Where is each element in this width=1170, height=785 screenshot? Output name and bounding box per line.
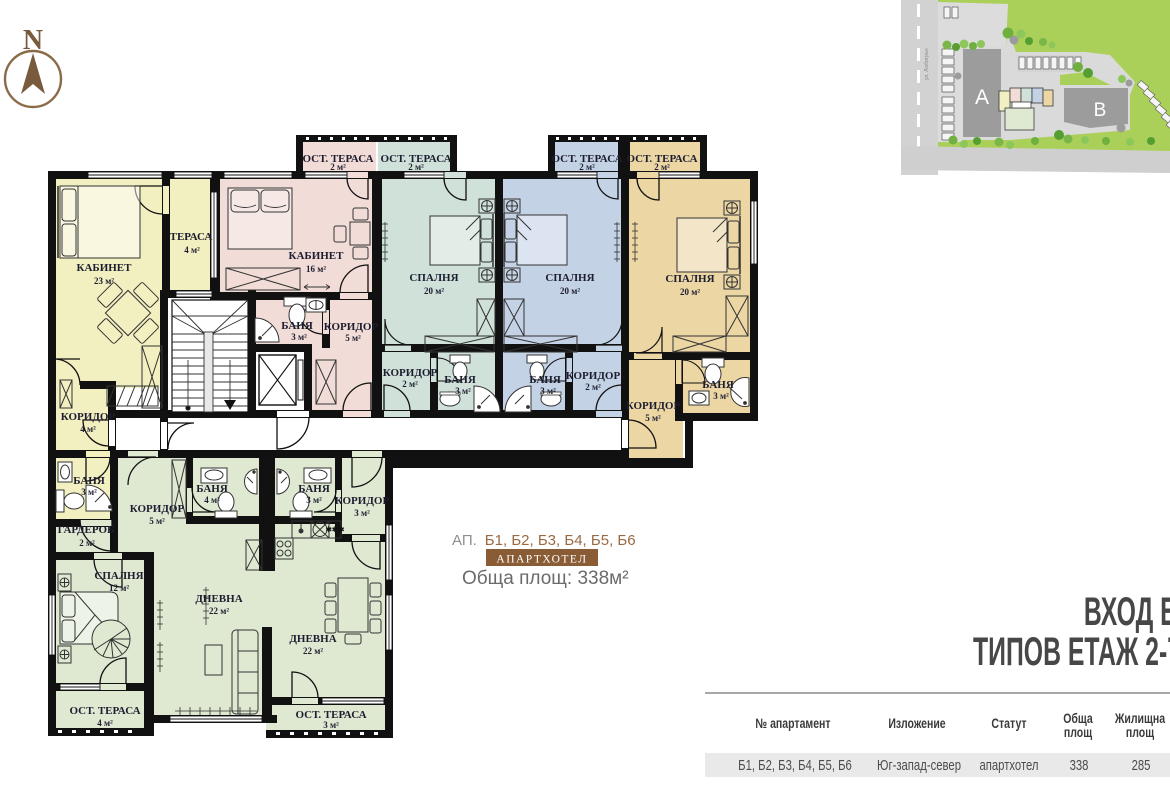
svg-text:285: 285 <box>1132 757 1151 774</box>
svg-text:АПАРТХОТЕЛ: АПАРТХОТЕЛ <box>496 554 587 566</box>
svg-text:3 м²: 3 м² <box>306 495 322 505</box>
svg-text:КОРИДОР: КОРИДОР <box>61 411 116 423</box>
svg-text:3 м²: 3 м² <box>291 332 307 342</box>
svg-text:площ: площ <box>1126 725 1155 741</box>
svg-text:СПАЛНЯ: СПАЛНЯ <box>409 272 458 284</box>
svg-text:3 м²: 3 м² <box>354 508 370 518</box>
svg-text:ВХОД Б: ВХОД Б <box>1084 590 1170 634</box>
svg-text:3 м²: 3 м² <box>81 487 97 497</box>
svg-text:Обща площ: 338м²: Обща площ: 338м² <box>462 568 629 589</box>
svg-text:ул. Люботрън: ул. Люботрън <box>924 48 930 80</box>
svg-text:Б1, Б2, Б3, Б4, Б5, Б6: Б1, Б2, Б3, Б4, Б5, Б6 <box>738 757 852 774</box>
svg-text:20 м²: 20 м² <box>424 286 444 296</box>
svg-text:12 м²: 12 м² <box>109 583 129 593</box>
svg-text:23 м²: 23 м² <box>94 276 114 286</box>
svg-text:Изложение: Изложение <box>888 716 946 732</box>
svg-text:ТЕРАСА: ТЕРАСА <box>170 231 213 243</box>
svg-text:4 м²: 4 м² <box>184 245 200 255</box>
svg-text:площ: площ <box>1064 725 1093 741</box>
svg-text:ДНЕВНА: ДНЕВНА <box>289 633 336 645</box>
svg-text:Статут: Статут <box>991 716 1026 732</box>
svg-text:B: B <box>1094 100 1107 121</box>
svg-text:✱✱✱: ✱✱✱ <box>326 525 346 534</box>
svg-text:A: A <box>975 86 989 109</box>
svg-text:КАБИНЕТ: КАБИНЕТ <box>289 250 345 262</box>
svg-text:338: 338 <box>1070 757 1089 774</box>
svg-text:N: N <box>23 25 43 56</box>
svg-text:ТИПОВ ЕТАЖ 2-7: ТИПОВ ЕТАЖ 2-7 <box>973 630 1170 674</box>
svg-text:3 м²: 3 м² <box>323 720 339 730</box>
svg-text:2 м²: 2 м² <box>330 162 346 172</box>
svg-text:№ апартамент: № апартамент <box>755 716 830 732</box>
svg-text:2 м²: 2 м² <box>408 162 424 172</box>
svg-text:Юг-запад-север: Юг-запад-север <box>877 757 961 774</box>
svg-text:КОРИДОР: КОРИДОР <box>324 321 379 333</box>
svg-text:20 м²: 20 м² <box>680 287 700 297</box>
svg-text:БАНЯ: БАНЯ <box>281 320 313 332</box>
svg-text:КОРИДОР: КОРИДОР <box>383 367 438 379</box>
svg-text:БАНЯ: БАНЯ <box>73 475 105 487</box>
svg-text:КОРИДОР: КОРИДОР <box>566 370 621 382</box>
svg-text:22 м²: 22 м² <box>209 606 229 616</box>
svg-text:БАНЯ: БАНЯ <box>196 483 228 495</box>
svg-text:5 м²: 5 м² <box>149 516 165 526</box>
svg-text:2 м²: 2 м² <box>79 538 95 548</box>
svg-text:4 м²: 4 м² <box>204 495 220 505</box>
svg-text:СПАЛНЯ: СПАЛНЯ <box>94 570 143 582</box>
svg-text:3 м²: 3 м² <box>540 386 556 396</box>
svg-text:3 м²: 3 м² <box>455 386 471 396</box>
svg-text:КОРИДОР: КОРИДОР <box>335 495 390 507</box>
svg-text:2 м²: 2 м² <box>654 162 670 172</box>
svg-text:5 м²: 5 м² <box>345 333 361 343</box>
svg-text:3 м²: 3 м² <box>713 391 729 401</box>
svg-text:БАНЯ: БАНЯ <box>444 374 476 386</box>
svg-text:4 м²: 4 м² <box>97 718 113 728</box>
svg-text:ОСТ. ТЕРАСА: ОСТ. ТЕРАСА <box>69 705 140 717</box>
svg-text:КОРИДОР: КОРИДОР <box>130 503 185 515</box>
svg-text:16 м²: 16 м² <box>306 264 326 274</box>
svg-text:БАНЯ: БАНЯ <box>702 379 734 391</box>
svg-text:БАНЯ: БАНЯ <box>298 483 330 495</box>
svg-text:СПАЛНЯ: СПАЛНЯ <box>665 273 714 285</box>
svg-text:СПАЛНЯ: СПАЛНЯ <box>545 272 594 284</box>
svg-text:ГАРДЕРОБ: ГАРДЕРОБ <box>58 524 115 536</box>
svg-text:КАБИНЕТ: КАБИНЕТ <box>77 262 133 274</box>
svg-text:4 м²: 4 м² <box>80 424 96 434</box>
svg-text:20 м²: 20 м² <box>560 286 580 296</box>
svg-text:КОРИДОР: КОРИДОР <box>626 400 681 412</box>
svg-text:БАНЯ: БАНЯ <box>529 374 561 386</box>
svg-text:ДНЕВНА: ДНЕВНА <box>195 593 242 605</box>
svg-text:22 м²: 22 м² <box>303 646 323 656</box>
svg-text:2 м²: 2 м² <box>585 382 601 392</box>
svg-text:2 м²: 2 м² <box>579 162 595 172</box>
svg-text:апартхотел: апартхотел <box>979 757 1038 774</box>
svg-text:2 м²: 2 м² <box>402 379 418 389</box>
svg-text:5 м²: 5 м² <box>645 413 661 423</box>
